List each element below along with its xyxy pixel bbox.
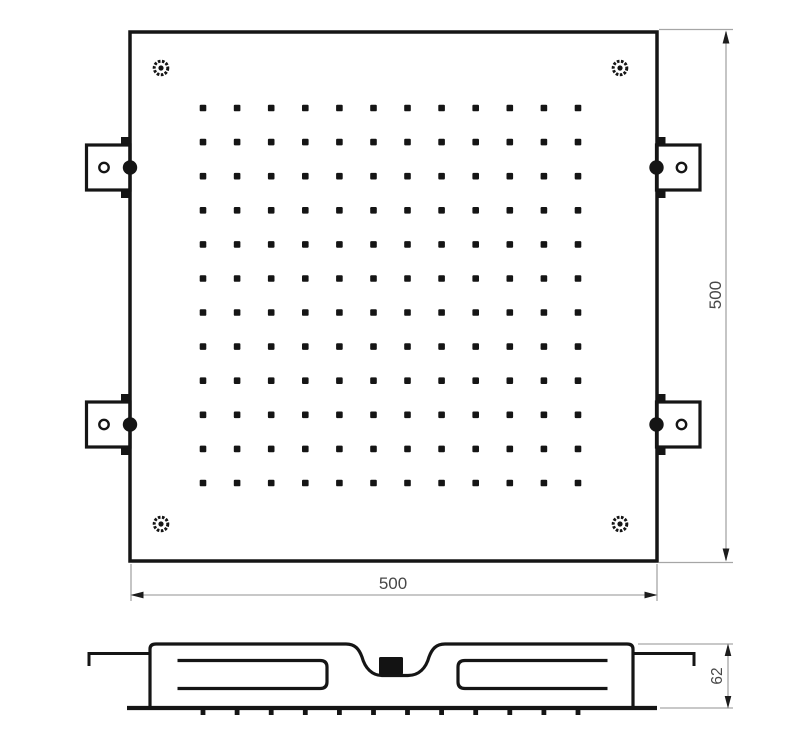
nozzle-dot (575, 377, 582, 384)
nozzle-dot (336, 480, 343, 487)
bracket-hole (99, 163, 108, 172)
nozzle-dot (268, 412, 275, 419)
nozzle-dot (472, 241, 479, 248)
nozzle-dot (438, 207, 445, 214)
nozzle-dot (404, 343, 411, 350)
nozzle-dot (472, 173, 479, 180)
bracket-hole (677, 420, 686, 429)
bracket-hole (99, 420, 108, 429)
side-profile-view (89, 644, 694, 715)
nozzle-dot (472, 105, 479, 112)
nozzle-dot (268, 105, 275, 112)
nozzle-dot (234, 446, 241, 453)
nozzle-dot (541, 173, 548, 180)
nozzle-dot (200, 480, 207, 487)
left-mounting-rail (89, 654, 150, 667)
nozzle-dot (575, 412, 582, 419)
nozzle-dot (472, 309, 479, 316)
nozzle-dot (200, 309, 207, 316)
mounting-bracket (87, 394, 138, 455)
nozzle-dot (507, 412, 514, 419)
bracket-pin (123, 160, 137, 174)
bracket-pin (649, 160, 663, 174)
nozzle-dot (200, 207, 207, 214)
nozzle-dot (575, 480, 582, 487)
mounting-bracket (649, 394, 700, 455)
nozzle-dot (234, 139, 241, 146)
nozzle-dot (438, 275, 445, 282)
nozzle-tick (439, 710, 444, 716)
nozzle-dot (404, 105, 411, 112)
nozzle-dot (336, 139, 343, 146)
nozzle-dot (200, 241, 207, 248)
nozzle-dot (438, 241, 445, 248)
nozzle-dot (370, 173, 377, 180)
nozzle-dot (234, 173, 241, 180)
nozzle-tick (576, 710, 581, 716)
nozzle-dot (404, 309, 411, 316)
nozzle-dot (404, 446, 411, 453)
nozzle-dot (200, 275, 207, 282)
nozzle-dot (370, 480, 377, 487)
nozzle-dot (234, 377, 241, 384)
nozzle-dot (302, 241, 309, 248)
nozzle-dot (438, 412, 445, 419)
nozzle-dot (472, 446, 479, 453)
nozzle-dot (507, 309, 514, 316)
nozzle-dot (438, 480, 445, 487)
nozzle-ticks (201, 710, 581, 716)
nozzle-dot (472, 207, 479, 214)
nozzle-dot (575, 105, 582, 112)
bracket-hole (677, 163, 686, 172)
nozzle-dot (336, 309, 343, 316)
depth-dimension-label: 62 (709, 667, 726, 684)
nozzle-dot (541, 412, 548, 419)
nozzle-dot (575, 139, 582, 146)
nozzle-dot (541, 480, 548, 487)
nozzle-dot (370, 139, 377, 146)
nozzle-tick (235, 710, 240, 716)
nozzle-dot (404, 275, 411, 282)
nozzle-dot (507, 139, 514, 146)
nozzle-dot (370, 377, 377, 384)
nozzle-dot (472, 343, 479, 350)
nozzle-dot (336, 343, 343, 350)
technical-drawing-page: 500 500 62 (0, 0, 800, 737)
nozzle-dot (200, 377, 207, 384)
top-view (87, 32, 701, 561)
nozzle-tick (507, 710, 512, 716)
nozzle-dot (370, 343, 377, 350)
nozzle-dot (575, 446, 582, 453)
nozzle-dot (404, 173, 411, 180)
nozzle-dot (438, 343, 445, 350)
nozzle-dot (234, 105, 241, 112)
nozzle-dot (438, 105, 445, 112)
nozzle-dot (302, 446, 309, 453)
bracket-pin (123, 417, 137, 431)
nozzle-dot (268, 173, 275, 180)
nozzle-dot (541, 105, 548, 112)
nozzle-dot (336, 377, 343, 384)
nozzle-dot (507, 241, 514, 248)
nozzle-dot (302, 480, 309, 487)
nozzle-dot (575, 173, 582, 180)
nozzle-tick (542, 710, 547, 716)
nozzle-dot (507, 446, 514, 453)
nozzle-dot (507, 275, 514, 282)
nozzle-dot (404, 207, 411, 214)
nozzle-dot (541, 275, 548, 282)
nozzle-dot (234, 309, 241, 316)
nozzle-dot (234, 480, 241, 487)
nozzle-dot (541, 309, 548, 316)
arrow-left-icon (131, 592, 144, 599)
arrow-down-icon (725, 696, 732, 709)
arrow-up-icon (723, 31, 730, 44)
nozzle-dot (302, 275, 309, 282)
nozzle-tick (371, 710, 376, 716)
nozzle-tick (473, 710, 478, 716)
nozzle-dot (404, 241, 411, 248)
nozzle-dot (507, 480, 514, 487)
nozzle-tick (201, 710, 206, 716)
nozzle-dot (541, 139, 548, 146)
nozzle-dot (268, 377, 275, 384)
nozzle-dot (507, 173, 514, 180)
nozzle-dot (336, 105, 343, 112)
nozzle-dot (575, 309, 582, 316)
nozzle-dot (268, 275, 275, 282)
nozzle-dot (302, 377, 309, 384)
nozzle-dot (404, 412, 411, 419)
nozzle-dot (507, 207, 514, 214)
water-inlet (379, 657, 403, 675)
nozzle-dot (541, 377, 548, 384)
nozzle-dot (336, 173, 343, 180)
nozzle-dot (575, 343, 582, 350)
arrow-up-icon (725, 644, 732, 657)
nozzle-dot (200, 173, 207, 180)
nozzle-dot (575, 275, 582, 282)
nozzle-dot (541, 446, 548, 453)
nozzle-dot (507, 377, 514, 384)
nozzle-dot (234, 412, 241, 419)
nozzle-dot (438, 173, 445, 180)
nozzle-dot (404, 139, 411, 146)
nozzle-tick (269, 710, 274, 716)
nozzle-dot (472, 275, 479, 282)
nozzle-dot (336, 412, 343, 419)
nozzle-dot (302, 105, 309, 112)
nozzle-dot (200, 343, 207, 350)
height-dimension-label: 500 (706, 281, 725, 309)
dimension-width: 500 (131, 564, 658, 601)
dimension-height: 500 (659, 30, 733, 563)
nozzle-dot (234, 343, 241, 350)
nozzle-dot (200, 446, 207, 453)
nozzle-dot (268, 480, 275, 487)
nozzle-dot (336, 207, 343, 214)
nozzle-dot (234, 275, 241, 282)
mounting-bracket (649, 137, 700, 198)
nozzle-dot (438, 377, 445, 384)
nozzle-dot (541, 207, 548, 214)
nozzle-dot (302, 412, 309, 419)
nozzle-dot (302, 343, 309, 350)
nozzle-dot (268, 446, 275, 453)
nozzle-dot (370, 412, 377, 419)
arrow-right-icon (645, 592, 658, 599)
width-dimension-label: 500 (379, 574, 407, 593)
drawing-svg: 500 500 62 (0, 0, 800, 737)
nozzle-dot (541, 343, 548, 350)
nozzle-dot (268, 309, 275, 316)
nozzle-dot (472, 480, 479, 487)
nozzle-dot (507, 343, 514, 350)
nozzle-dot (336, 241, 343, 248)
nozzle-dot (370, 275, 377, 282)
nozzle-dot (268, 343, 275, 350)
nozzle-dot (438, 446, 445, 453)
nozzle-dot (302, 309, 309, 316)
nozzle-dot (302, 173, 309, 180)
nozzle-tick (337, 710, 342, 716)
mounting-bracket (87, 137, 138, 198)
nozzle-tick (405, 710, 410, 716)
nozzle-dot (268, 139, 275, 146)
nozzle-dot (234, 241, 241, 248)
housing-outline (150, 644, 633, 707)
nozzle-dot (507, 105, 514, 112)
nozzle-dot (234, 207, 241, 214)
nozzle-dot (200, 412, 207, 419)
nozzle-dot (200, 139, 207, 146)
nozzle-dot (541, 241, 548, 248)
nozzle-dot (472, 139, 479, 146)
nozzle-dot (370, 207, 377, 214)
nozzle-dot (575, 241, 582, 248)
nozzle-dot (404, 480, 411, 487)
nozzle-dot (302, 139, 309, 146)
arrow-down-icon (723, 549, 730, 562)
nozzle-dot (200, 105, 207, 112)
nozzle-dot (370, 446, 377, 453)
nozzle-dot (438, 309, 445, 316)
nozzle-dot (370, 309, 377, 316)
nozzle-dot (302, 207, 309, 214)
nozzle-tick (303, 710, 308, 716)
nozzle-dot (268, 241, 275, 248)
right-mounting-rail (633, 654, 694, 667)
nozzle-dot (404, 377, 411, 384)
nozzle-dot (336, 446, 343, 453)
nozzle-dot (575, 207, 582, 214)
nozzle-dot (370, 241, 377, 248)
nozzle-dot (370, 105, 377, 112)
nozzle-dot (472, 377, 479, 384)
nozzle-dot (438, 139, 445, 146)
nozzle-dot (472, 412, 479, 419)
nozzle-dot (336, 275, 343, 282)
bracket-pin (649, 417, 663, 431)
nozzle-dot (268, 207, 275, 214)
